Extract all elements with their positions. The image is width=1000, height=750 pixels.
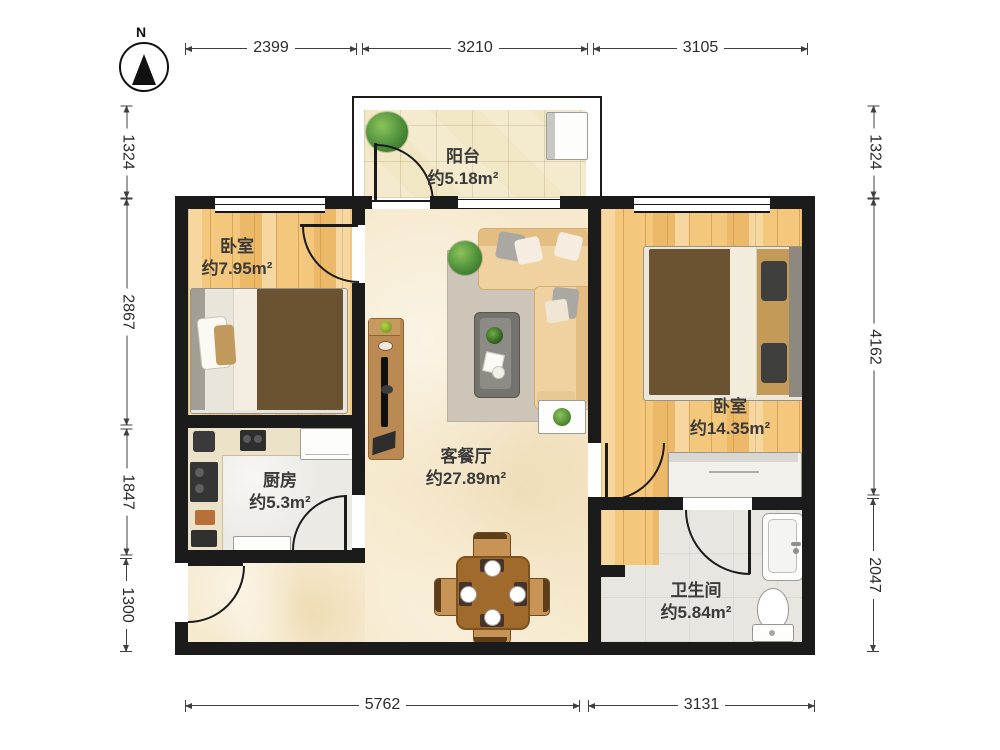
plant-icon	[486, 327, 503, 344]
balcony-slider-window	[458, 199, 560, 209]
dimension-left-4: 1300	[117, 558, 137, 652]
plate	[484, 609, 501, 626]
bed-small	[190, 288, 348, 414]
dimension-top-2: 3210	[362, 38, 588, 58]
wall	[175, 196, 188, 563]
window-bedroom-large	[634, 196, 770, 213]
wall	[588, 196, 601, 443]
compass-north-label: N	[136, 24, 146, 40]
plant-icon	[553, 408, 571, 426]
wall	[175, 642, 815, 655]
wall	[430, 196, 458, 209]
kitchen-cutting-board	[195, 510, 215, 525]
room-label-living-dining: 客餐厅约27.89m²	[426, 446, 506, 491]
plant-icon	[380, 321, 392, 333]
dimension-right-2: 4162	[864, 198, 884, 495]
dimension-left-2: 2867	[117, 198, 137, 425]
wall	[352, 196, 365, 225]
floor-plan-canvas: N 2399 3210 3105 5762 3131 1324 2867 184…	[0, 0, 1000, 750]
toilet-tank	[752, 624, 794, 642]
dimension-right-3: 2047	[864, 498, 884, 652]
bed-large	[643, 246, 804, 401]
plate	[460, 586, 477, 603]
bedroom-cabinet	[668, 452, 802, 498]
wall	[175, 415, 365, 428]
room-label-balcony: 阳台约5.18m²	[428, 146, 499, 191]
sofa-pillow	[545, 299, 570, 324]
pillow	[761, 343, 787, 383]
plate	[509, 586, 526, 603]
wall	[175, 550, 365, 563]
dimension-bottom-1: 5762	[185, 695, 580, 715]
room-label-kitchen: 厨房约5.3m²	[249, 470, 310, 515]
fridge	[300, 428, 354, 460]
dimension-top-1: 2399	[185, 38, 357, 58]
room-label-bedroom-large: 卧室约14.35m²	[690, 396, 770, 441]
kitchen-appliance	[191, 530, 217, 547]
kitchen-appliance	[190, 462, 218, 502]
dimension-left-1: 1324	[117, 105, 137, 198]
room-label-bathroom: 卫生间约5.84m²	[661, 580, 732, 625]
pillow	[761, 261, 787, 301]
dining-table	[456, 556, 530, 630]
window-bedroom-small	[215, 196, 325, 213]
stove	[240, 430, 266, 451]
tv-stand	[368, 318, 404, 460]
faucet	[791, 542, 801, 546]
dimension-left-3: 1847	[117, 428, 137, 555]
dimension-bottom-2: 3131	[588, 695, 815, 715]
plant-icon	[448, 241, 482, 275]
speaker	[372, 431, 395, 455]
pillow	[214, 324, 237, 365]
sofa-pillow	[514, 236, 544, 266]
wall	[588, 497, 601, 655]
plate	[484, 560, 501, 577]
dimension-right-1: 1324	[864, 105, 884, 198]
bathroom-entry-wood-patch	[601, 510, 659, 565]
wall	[802, 196, 815, 655]
side-table	[538, 400, 586, 434]
north-arrow-icon	[119, 42, 169, 92]
coffee-table	[474, 312, 520, 398]
wall	[752, 497, 815, 510]
wall	[352, 283, 365, 428]
room-label-bedroom-small: 卧室约7.95m²	[202, 236, 273, 281]
wall-stub	[601, 565, 625, 577]
kitchen-sink	[193, 431, 215, 452]
dimension-top-3: 3105	[593, 38, 808, 58]
washing-machine	[546, 112, 588, 160]
wall	[352, 428, 365, 495]
bathtub	[762, 513, 804, 581]
